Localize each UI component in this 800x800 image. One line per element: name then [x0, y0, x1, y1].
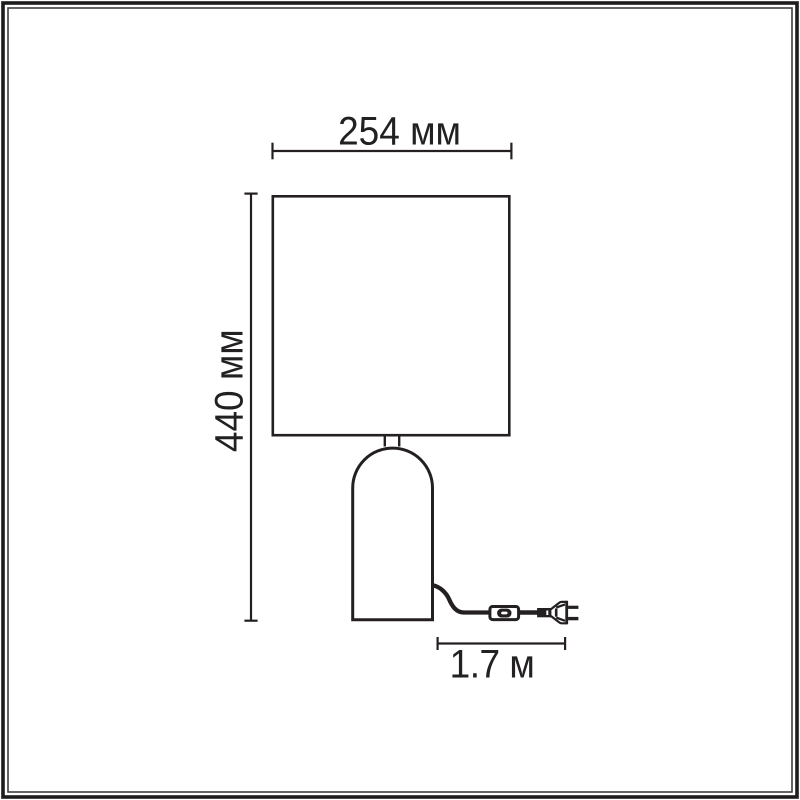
- svg-text:1.7 м: 1.7 м: [450, 642, 535, 687]
- svg-text:254 мм: 254 мм: [338, 109, 461, 154]
- svg-text:440 мм: 440 мм: [207, 329, 252, 452]
